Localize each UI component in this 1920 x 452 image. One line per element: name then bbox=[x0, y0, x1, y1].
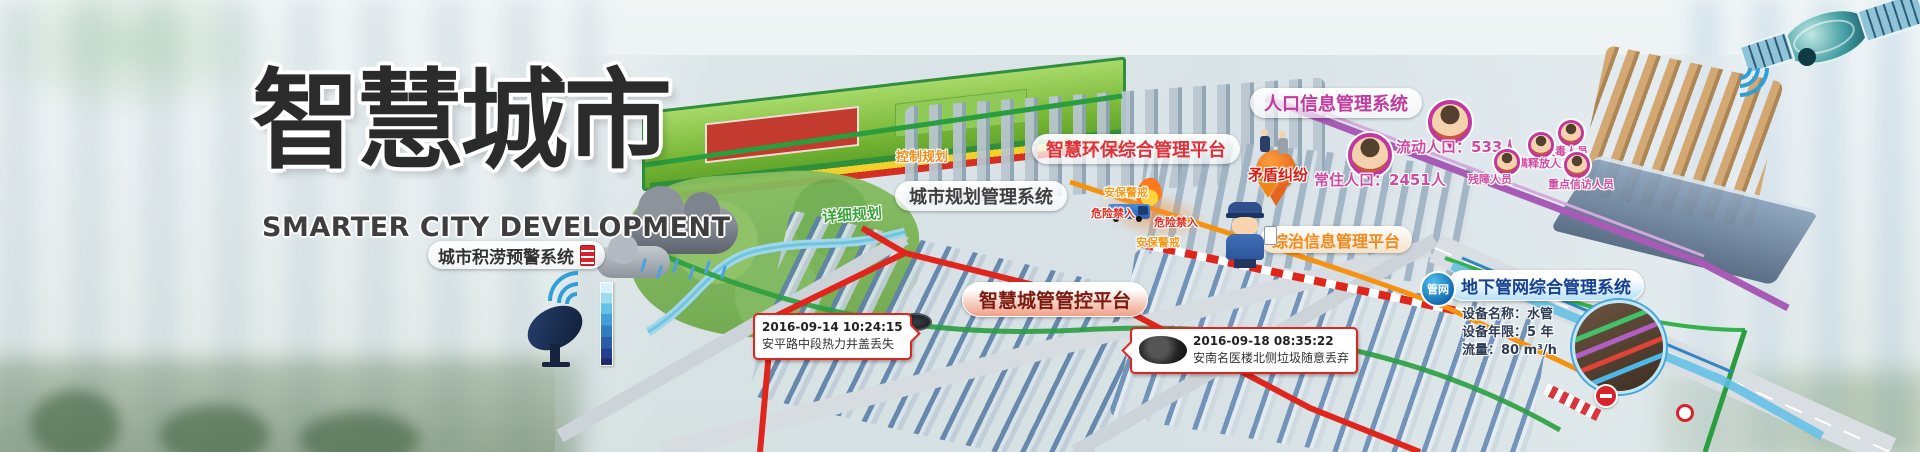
dispute-person-right bbox=[1278, 138, 1288, 154]
page-title: 智慧城市 bbox=[252, 52, 672, 192]
signal-arcs-right bbox=[1706, 34, 1766, 94]
road-marker-pin bbox=[1676, 404, 1694, 422]
pipe-device-age: 设备年限：5 年 bbox=[1462, 321, 1554, 340]
disabled-person-label: 残障人员 bbox=[1468, 171, 1512, 187]
garbage-photo bbox=[1139, 336, 1187, 364]
pipe-flow-rate: 流量：80 m³/h bbox=[1462, 339, 1557, 358]
satellite-dish-feed bbox=[1798, 48, 1816, 66]
water-level-gauge-icon bbox=[580, 245, 595, 266]
text-dispute: 矛盾纠纷 bbox=[1248, 164, 1308, 185]
garbage-event-desc: 安南名医楼北侧垃圾随意丢弃 bbox=[1193, 351, 1349, 365]
text-security-alert-top: 安保警戒 bbox=[1104, 184, 1148, 200]
pin-key-petitioner bbox=[1564, 152, 1590, 178]
police-face bbox=[1232, 217, 1258, 235]
garbage-event-time: 2016-09-18 08:35:22 bbox=[1193, 333, 1349, 350]
label-flood-warning-system: 城市积涝预警系统 bbox=[428, 241, 605, 269]
manhole-event-desc: 安平路中段热力井盖丢失 bbox=[762, 337, 894, 351]
dispute-person-left bbox=[1260, 136, 1270, 152]
rain-drops bbox=[642, 256, 732, 282]
pipe-network-badge: 管网 bbox=[1420, 271, 1456, 307]
satellite-dish-icon bbox=[520, 300, 592, 370]
label-pipe-network-system: 地下管网综合管理系统 bbox=[1448, 270, 1644, 301]
manhole-event-time: 2016-09-14 10:24:15 bbox=[762, 319, 903, 336]
resident-population-label: 常住人口：2451人 bbox=[1314, 169, 1446, 190]
rain-scale-legend bbox=[600, 282, 613, 366]
police-legs bbox=[1234, 259, 1256, 268]
label-planning-system: 城市规划管理系统 bbox=[895, 181, 1067, 211]
label-governance-platform: 综治信息管理平台 bbox=[1260, 226, 1412, 253]
text-danger-no-entry-right: 危险禁入 bbox=[1154, 214, 1198, 230]
text-security-alert-bottom: 安保警戒 bbox=[1136, 234, 1180, 250]
handheld-phone-icon bbox=[1264, 226, 1277, 245]
text-control-plan: 控制规划 bbox=[896, 146, 948, 165]
key-petitioner-label: 重点信访人员 bbox=[1548, 176, 1614, 192]
no-entry-sign bbox=[1594, 384, 1618, 408]
label-env-platform: 智慧环保综合管理平台 bbox=[1032, 134, 1240, 164]
garbage-event-text: 2016-09-18 08:35:22 安南名医楼北侧垃圾随意丢弃 bbox=[1193, 333, 1349, 368]
label-population-system: 人口信息管理系统 bbox=[1250, 88, 1422, 118]
page-subtitle: SMARTER CITY DEVELOPMENT bbox=[262, 212, 731, 243]
event-callout-garbage: 2016-09-18 08:35:22 安南名医楼北侧垃圾随意丢弃 bbox=[1130, 327, 1358, 374]
smart-city-banner: 智慧城市 SMARTER CITY DEVELOPMENT 城市积涝预警系统 智… bbox=[0, 0, 1920, 452]
police-uniform bbox=[1226, 234, 1264, 260]
police-officer-illustration bbox=[1222, 202, 1276, 268]
solar-panel-icon bbox=[1856, 0, 1920, 43]
label-city-mgmt-platform: 智慧城管管控平台 bbox=[962, 282, 1148, 317]
text-danger-no-entry-left: 危险禁入 bbox=[1091, 205, 1135, 221]
event-callout-manhole: 2016-09-14 10:24:15 安平路中段热力井盖丢失 bbox=[753, 313, 912, 360]
satellite-icon bbox=[1740, 0, 1920, 104]
pipe-device-name: 设备名称：水管 bbox=[1462, 303, 1553, 322]
flood-warning-label: 城市积涝预警系统 bbox=[438, 243, 574, 268]
text-detailed-plan: 详细规划 bbox=[821, 202, 882, 227]
